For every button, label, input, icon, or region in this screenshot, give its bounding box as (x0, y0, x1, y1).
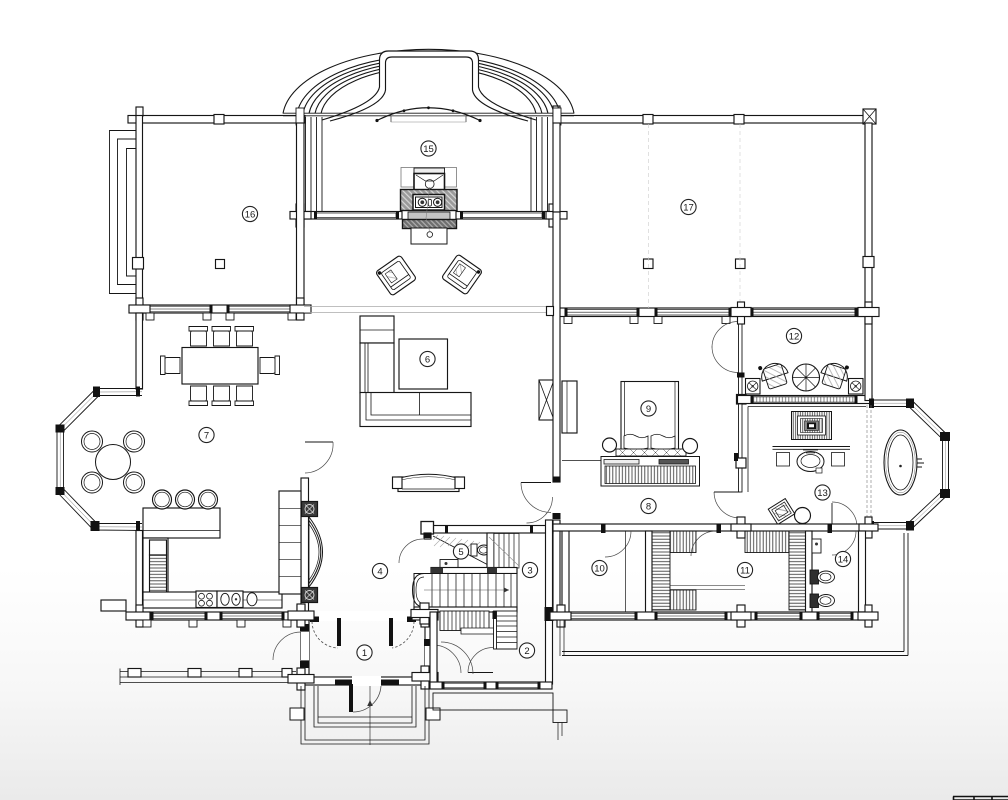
svg-text:6: 6 (425, 355, 430, 366)
svg-text:8: 8 (646, 502, 651, 513)
svg-text:4: 4 (377, 567, 382, 578)
svg-text:15: 15 (423, 144, 434, 155)
svg-text:14: 14 (838, 555, 849, 566)
svg-text:17: 17 (683, 203, 694, 214)
svg-text:10: 10 (594, 564, 605, 575)
svg-text:12: 12 (789, 332, 800, 343)
svg-text:9: 9 (646, 404, 651, 415)
svg-text:11: 11 (740, 566, 750, 577)
svg-text:7: 7 (204, 431, 209, 442)
svg-text:13: 13 (817, 488, 828, 499)
svg-text:5: 5 (458, 547, 463, 558)
svg-text:2: 2 (524, 646, 529, 657)
svg-text:1: 1 (362, 648, 367, 659)
svg-text:3: 3 (527, 566, 532, 577)
svg-text:16: 16 (245, 210, 256, 221)
